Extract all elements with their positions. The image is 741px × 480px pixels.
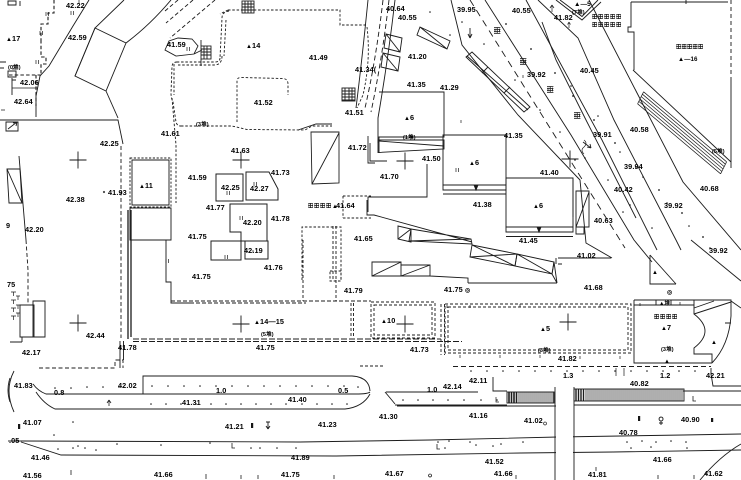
svg-text:42.14: 42.14 [443, 382, 463, 391]
svg-text:42.21: 42.21 [706, 371, 725, 380]
svg-text:41.89: 41.89 [291, 453, 310, 462]
svg-text:(7堆): (7堆) [572, 8, 585, 16]
svg-text:42.20: 42.20 [243, 218, 262, 227]
svg-text:41.51: 41.51 [345, 108, 364, 117]
svg-text:40.55: 40.55 [512, 6, 531, 15]
svg-text:.05: .05 [9, 436, 19, 445]
svg-text:41.66: 41.66 [154, 470, 173, 479]
svg-text:40.63: 40.63 [594, 216, 613, 225]
svg-text:41.72: 41.72 [348, 143, 367, 152]
svg-text:41.34(: 41.34( [355, 65, 377, 74]
svg-text:40.64: 40.64 [386, 4, 406, 13]
svg-text:41.66: 41.66 [494, 469, 513, 478]
svg-text:41.70: 41.70 [380, 172, 399, 181]
svg-text:42.17: 42.17 [22, 348, 41, 357]
svg-text:39.91: 39.91 [593, 130, 612, 139]
svg-text:(0堆): (0堆) [8, 63, 21, 71]
svg-text:41.50: 41.50 [422, 154, 441, 163]
svg-text:(5堆): (5堆) [712, 147, 725, 155]
svg-text:42.25: 42.25 [100, 139, 119, 148]
svg-text:39.92: 39.92 [709, 246, 728, 255]
svg-text:41.35: 41.35 [407, 80, 426, 89]
svg-text:41.75: 41.75 [444, 285, 463, 294]
svg-text:40.45: 40.45 [580, 66, 599, 75]
svg-text:41.64: 41.64 [336, 201, 356, 210]
svg-text:40.55: 40.55 [398, 13, 417, 22]
svg-text:42.64: 42.64 [14, 97, 34, 106]
svg-text:41.30: 41.30 [379, 412, 398, 421]
svg-text:41.38: 41.38 [473, 200, 492, 209]
svg-text:41.02: 41.02 [577, 251, 596, 260]
svg-text:▲堆: ▲堆 [659, 299, 671, 307]
svg-text:◎: ◎ [465, 288, 471, 294]
svg-text:41.75: 41.75 [256, 343, 275, 352]
svg-text:41.73: 41.73 [271, 168, 290, 177]
svg-text:41.59: 41.59 [167, 40, 186, 49]
svg-text:75: 75 [7, 280, 15, 289]
svg-text:41.61: 41.61 [161, 129, 180, 138]
svg-text:39.94: 39.94 [624, 162, 644, 171]
svg-text:40.78: 40.78 [619, 428, 638, 437]
svg-text:41.79: 41.79 [344, 286, 363, 295]
svg-text:42.11: 42.11 [469, 376, 487, 385]
svg-text:41.82: 41.82 [558, 354, 577, 363]
svg-text:▲: ▲ [332, 204, 338, 210]
svg-text:▲—5: ▲—5 [574, 1, 591, 8]
svg-text:41.45: 41.45 [519, 236, 538, 245]
svg-text:42.02: 42.02 [118, 381, 137, 390]
svg-text:39.92: 39.92 [527, 70, 546, 79]
svg-text:42.22: 42.22 [66, 1, 85, 10]
svg-text:1.3: 1.3 [563, 371, 573, 380]
svg-text:41.21: 41.21 [225, 422, 244, 431]
svg-text:40.68: 40.68 [700, 184, 719, 193]
svg-text:42.06: 42.06 [20, 78, 39, 87]
svg-text:9: 9 [6, 221, 10, 230]
svg-text:41.73: 41.73 [410, 345, 429, 354]
svg-text:41.63: 41.63 [231, 146, 250, 155]
svg-text:▲: ▲ [664, 359, 670, 365]
svg-text:41.75: 41.75 [281, 470, 300, 479]
svg-text:41.75: 41.75 [188, 232, 207, 241]
svg-text:41.49: 41.49 [309, 53, 328, 62]
svg-text:41.65: 41.65 [354, 234, 373, 243]
svg-text:41.56: 41.56 [23, 471, 42, 480]
svg-text:▲: ▲ [711, 340, 717, 346]
svg-text:▲: ▲ [652, 270, 658, 276]
svg-text:41.31: 41.31 [182, 398, 201, 407]
svg-text:41.35: 41.35 [504, 131, 523, 140]
svg-text:◎: ◎ [667, 290, 673, 296]
svg-text:41.52: 41.52 [254, 98, 273, 107]
svg-text:41.40: 41.40 [288, 395, 307, 404]
svg-text:41.23: 41.23 [318, 420, 337, 429]
svg-text:42.25: 42.25 [221, 183, 240, 192]
svg-text:0.5: 0.5 [338, 386, 348, 395]
svg-text:(5堆): (5堆) [261, 330, 274, 338]
svg-text:42.59: 42.59 [68, 33, 87, 42]
svg-text:41.62: 41.62 [704, 469, 723, 478]
svg-text:40.58: 40.58 [630, 125, 649, 134]
svg-text:41.59: 41.59 [188, 173, 207, 182]
svg-text:41.52: 41.52 [485, 457, 504, 466]
svg-text:41.82: 41.82 [554, 13, 573, 22]
svg-text:1.0: 1.0 [427, 385, 437, 394]
svg-text:40.82: 40.82 [630, 379, 649, 388]
svg-text:41.81: 41.81 [588, 470, 607, 479]
svg-text:41.67: 41.67 [385, 469, 404, 478]
svg-text:41.20: 41.20 [408, 52, 427, 61]
svg-text:(3堆): (3堆) [661, 345, 674, 353]
svg-text:41.83: 41.83 [14, 381, 33, 390]
svg-text:41.77: 41.77 [206, 203, 225, 212]
svg-text:42.27: 42.27 [250, 184, 269, 193]
svg-text:41.16: 41.16 [469, 411, 488, 420]
svg-text:41.76: 41.76 [264, 263, 283, 272]
svg-text:41.02: 41.02 [524, 416, 543, 425]
svg-text:42.19: 42.19 [244, 246, 263, 255]
svg-text:41.78: 41.78 [271, 214, 290, 223]
svg-text:42.38: 42.38 [66, 195, 85, 204]
svg-text:0.8: 0.8 [54, 388, 64, 397]
svg-text:41.29: 41.29 [440, 83, 459, 92]
svg-text:42.44: 42.44 [86, 331, 106, 340]
svg-text:41.40: 41.40 [540, 168, 559, 177]
svg-text:40.42: 40.42 [614, 185, 633, 194]
svg-text:42.20: 42.20 [25, 225, 44, 234]
svg-text:39.92: 39.92 [664, 201, 683, 210]
svg-text:39.95: 39.95 [457, 5, 476, 14]
svg-text:41.46: 41.46 [31, 453, 50, 462]
svg-text:41.93: 41.93 [108, 188, 127, 197]
svg-text:(1堆): (1堆) [403, 133, 416, 141]
svg-text:41.07: 41.07 [23, 418, 42, 427]
svg-text:(3堆): (3堆) [196, 120, 209, 128]
svg-text:41.75: 41.75 [192, 272, 211, 281]
svg-text:40.90: 40.90 [681, 415, 700, 424]
svg-text:41.66: 41.66 [653, 455, 672, 464]
svg-text:1.2: 1.2 [660, 371, 670, 380]
svg-text:▲—16: ▲—16 [678, 56, 698, 63]
svg-text:41.68: 41.68 [584, 283, 603, 292]
svg-text:1.0: 1.0 [216, 386, 226, 395]
svg-text:41.78: 41.78 [118, 343, 137, 352]
